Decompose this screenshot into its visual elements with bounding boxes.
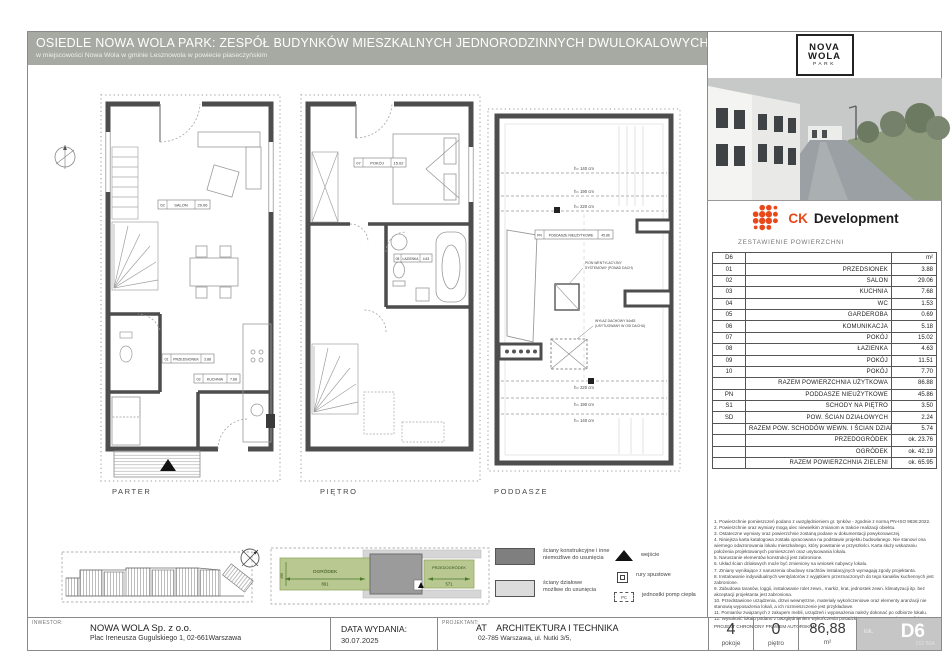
- area-stat: 86,88 m²: [798, 618, 856, 650]
- svg-text:PRZEDSIONEK: PRZEDSIONEK: [173, 357, 199, 361]
- unit-number: D6: [901, 621, 925, 643]
- svg-text:WYŁAZ DACHOWY 54x83: WYŁAZ DACHOWY 54x83: [595, 319, 636, 323]
- legend-pipes: rury spustowe: [617, 572, 671, 583]
- developer-logo-area: NOVA WOLA PARK: [708, 32, 941, 79]
- legend-entrance: wejście: [615, 550, 659, 561]
- legend-heatpump-label: jednostki pomp ciepła: [642, 592, 696, 599]
- entrance-triangle-icon: [615, 550, 633, 561]
- area-table-row: PRZEDOGRÓDEKok. 23.76: [713, 435, 937, 446]
- svg-text:SALON: SALON: [174, 202, 188, 207]
- svg-text:SYSTEMOWY (PONAD DACH): SYSTEMOWY (PONAD DACH): [585, 266, 633, 270]
- floor-plan-parter: 02 SALON 29.06: [98, 92, 283, 484]
- room-label-kuchnia: 03 KUCHNIA 7.68: [194, 374, 240, 383]
- north-arrow-icon: [52, 144, 78, 170]
- svg-text:03: 03: [197, 377, 201, 381]
- note-line: 7. Zmiany wynikające z naruszenia obudow…: [714, 568, 935, 574]
- legend-entrance-label: wejście: [641, 552, 659, 559]
- svg-text:OGRÓDEK: OGRÓDEK: [313, 568, 338, 575]
- issue-date-cell: DATA WYDANIA: 30.07.2025: [330, 618, 437, 650]
- investor-name: NOWA WOLA Sp. z o.o.: [90, 623, 241, 634]
- note-line: 9. Zabudowa tarasów, loggii, instalowani…: [714, 586, 935, 598]
- structural-wall-swatch: [495, 548, 535, 565]
- wall-stub-right-1: [637, 220, 671, 232]
- unit-code: Z02 B8A: [916, 641, 935, 647]
- disclaimer-notes: 1. Powierzchnie pomieszczeń podano z uwz…: [714, 519, 935, 630]
- investor-address: Plac Ireneusza Gugulskiego 1, 02-661Wars…: [90, 635, 241, 642]
- development-text: Development: [814, 211, 899, 226]
- svg-text:h= 190 cm: h= 190 cm: [574, 402, 594, 407]
- svg-text:PRZEDOGRÓDEK: PRZEDOGRÓDEK: [432, 565, 466, 570]
- svg-text:3.88: 3.88: [204, 357, 211, 361]
- outer-walls: [308, 104, 471, 449]
- area-value: 86,88: [809, 622, 845, 637]
- area-table-row: OGRÓDEKok. 42.19: [713, 446, 937, 457]
- legend-structural-line2: niemożliwe do usunięcia: [543, 555, 604, 561]
- legend-partition-line1: ściany działowe: [543, 580, 582, 586]
- area-table-row: S1SCHODY NA PIĘTRO3.50: [713, 401, 937, 412]
- svg-text:ŁAZIENKA: ŁAZIENKA: [403, 257, 420, 261]
- drainpipe-icon: [617, 572, 628, 583]
- estate-photo: [708, 78, 942, 201]
- investor-label: INWESTOR:: [32, 620, 63, 626]
- svg-text:861: 861: [322, 582, 330, 587]
- rooms-value: 4: [727, 622, 736, 638]
- plan-label-poddasze: PODDASZE: [494, 487, 548, 496]
- terrace: [114, 451, 200, 477]
- svg-text:571: 571: [446, 582, 454, 587]
- svg-text:45.86: 45.86: [601, 233, 610, 237]
- area-table-row: 06KOMUNIKACJA5.18: [713, 321, 937, 332]
- designer-address: 02-785 Warszawa, ul. Nutki 3/5,: [478, 635, 571, 642]
- unit-id-box: lok. D6 Z02 B8A: [856, 618, 941, 650]
- area-table-row: 09POKÓJ11.51: [713, 355, 937, 366]
- svg-text:h= 140 cm: h= 140 cm: [574, 418, 594, 423]
- area-table-row: 03KUCHNIA7.68: [713, 287, 937, 298]
- svg-text:29.06: 29.06: [197, 202, 208, 207]
- nova-wola-park-logo: NOVA WOLA PARK: [796, 34, 854, 76]
- investor-cell: INWESTOR: NOWA WOLA Sp. z o.o. Plac Iren…: [28, 618, 330, 650]
- room-label-pokoj: 07 POKÓJ 15.02: [354, 158, 406, 167]
- rooms-stat: 4 pokoje: [708, 618, 753, 650]
- svg-text:4.63: 4.63: [423, 257, 430, 261]
- svg-text:02: 02: [160, 202, 165, 207]
- compass-icon: [238, 546, 262, 570]
- area-table-row: RAZEM POW. SCHODÓW WEWN. I ŚCIAN DZIAŁ.5…: [713, 423, 937, 434]
- svg-text:07: 07: [356, 160, 361, 165]
- partition-wall-swatch: [495, 580, 535, 597]
- legend-structural: ściany konstrukcyjne i inne niemożliwe d…: [495, 548, 610, 565]
- area-table-row: 05GARDEROBA0.69: [713, 309, 937, 320]
- svg-text:08: 08: [396, 257, 400, 261]
- sidebar: NOVA WOLA PARK: [707, 32, 941, 617]
- plan-label-pietro: PIĘTRO: [320, 487, 358, 496]
- plan-label-parter: PARTER: [112, 487, 151, 496]
- svg-text:PN: PN: [537, 233, 542, 237]
- svg-text:01: 01: [165, 357, 169, 361]
- legend-structural-line1: ściany konstrukcyjne i inne: [543, 548, 610, 554]
- area-table: D6 m² 01PRZEDSIONEK3.8802SALON29.0603KUC…: [712, 252, 937, 469]
- area-table-row: 08ŁAZIENKA4.63: [713, 344, 937, 355]
- svg-text:h= 220 cm: h= 220 cm: [574, 204, 594, 209]
- title-bar: OSIEDLE NOWA WOLA PARK: ZESPÓŁ BUDYNKÓW …: [28, 32, 707, 65]
- area-table-row: 04WC1.53: [713, 298, 937, 309]
- area-table-row: 07POKÓJ15.02: [713, 332, 937, 343]
- area-table-row: 02SALON29.06: [713, 275, 937, 286]
- title-block-footer: INWESTOR: NOWA WOLA Sp. z o.o. Plac Iren…: [28, 617, 941, 650]
- wall-stub-right-2: [625, 291, 671, 306]
- door-marker: [266, 414, 275, 428]
- issue-date-label: DATA WYDANIA:: [341, 624, 407, 634]
- svg-text:PODDASZE NIEUŻYTKOWE: PODDASZE NIEUŻYTKOWE: [549, 232, 594, 237]
- designer-cell: PROJEKTANT: AT ARCHITEKTURA I TECHNIKA 0…: [437, 618, 708, 650]
- area-table-title: ZESTAWIENIE POWIERZCHNI: [738, 239, 844, 246]
- area-unit-label: m²: [824, 639, 831, 646]
- legend-pipes-label: rury spustowe: [636, 572, 671, 579]
- catalog-sheet: OSIEDLE NOWA WOLA PARK: ZESPÓŁ BUDYNKÓW …: [0, 0, 950, 671]
- note-line: 10. Przedstawione urządzenia, drzwi wewn…: [714, 598, 935, 610]
- legend-partition: ściany działowe możliwe do usunięcia: [495, 580, 596, 597]
- svg-text:KUCHNIA: KUCHNIA: [207, 377, 224, 381]
- svg-text:h= 140 cm: h= 140 cm: [574, 166, 594, 171]
- note-line: 4. Niniejsza karta katalogowa została op…: [714, 537, 935, 555]
- unit-prefix: lok.: [864, 629, 873, 635]
- room-label-pn: PN PODDASZE NIEUŻYTKOWE 45.86: [535, 230, 613, 239]
- designer-label: PROJEKTANT:: [442, 620, 479, 626]
- legend-heatpump: PC jednostki pomp ciepła: [614, 592, 696, 602]
- heat-pump-icon: PC: [614, 592, 634, 602]
- legend-partition-line2: możliwe do usunięcia: [543, 587, 596, 593]
- svg-text:POKÓJ: POKÓJ: [370, 160, 384, 165]
- floor-plan-poddasze: h= 140 cm h= 190 cm h= 220 cm h= 220 cm …: [485, 106, 683, 474]
- room-label-lazienka: 08 ŁAZIENKA 4.63: [394, 254, 432, 262]
- svg-text:h= 190 cm: h= 190 cm: [574, 189, 594, 194]
- area-table-row: RAZEM POWIERZCHNIA UŻYTKOWA86.88: [713, 378, 937, 389]
- floor-stat: 0 piętro: [753, 618, 798, 650]
- svg-text:15.02: 15.02: [393, 160, 404, 165]
- area-table-row: SDPOW. ŚCIAN DZIAŁOWYCH2.24: [713, 412, 937, 423]
- designer-name: AT ARCHITEKTURA I TECHNIKA: [476, 623, 619, 633]
- floor-label: piętro: [768, 640, 784, 647]
- note-line: 8. Instalowanie indywidualnych wentylato…: [714, 574, 935, 586]
- svg-text:h= 220 cm: h= 220 cm: [574, 385, 594, 390]
- ck-development-logo: CK Development: [708, 200, 941, 236]
- floor-plan-pietro: 07 POKÓJ 15.02: [298, 92, 483, 484]
- svg-text:490: 490: [280, 573, 284, 579]
- area-table-header-row: D6 m²: [713, 253, 937, 264]
- windows: [469, 147, 473, 202]
- issue-date-value: 30.07.2025: [341, 636, 379, 645]
- area-table-row: 01PRZEDSIONEK3.88: [713, 264, 937, 275]
- rooms-label: pokoje: [722, 640, 741, 647]
- area-table-row: PNPODDASZE NIEUŻYTKOWE45.86: [713, 389, 937, 400]
- ck-dots-icon: [750, 202, 782, 234]
- svg-text:7.68: 7.68: [230, 377, 237, 381]
- area-table-row: RAZEM POWIERZCHNIA ZIELENIok. 65.95: [713, 458, 937, 469]
- room-label-salon: 02 SALON 29.06: [158, 200, 210, 209]
- area-table-row: 10POKÓJ7.70: [713, 366, 937, 377]
- building-elevation: [58, 544, 258, 610]
- site-plan: OGRÓDEK 861 490 PRZEDOGRÓDEK 571: [268, 542, 493, 612]
- svg-text:(USYTUOWANY W OSI DACHU): (USYTUOWANY W OSI DACHU): [595, 324, 645, 328]
- page-subtitle: w miejscowości Nowa Wola w gminie Leszno…: [36, 52, 699, 59]
- page-title: OSIEDLE NOWA WOLA PARK: ZESPÓŁ BUDYNKÓW …: [36, 36, 699, 50]
- ck-text: CK: [788, 211, 808, 226]
- legend: ściany konstrukcyjne i inne niemożliwe d…: [495, 546, 713, 612]
- wall-stub-left: [499, 344, 541, 359]
- sheet-frame: OSIEDLE NOWA WOLA PARK: ZESPÓŁ BUDYNKÓW …: [27, 31, 942, 651]
- svg-text:PION WENTYLACYJNY: PION WENTYLACYJNY: [585, 261, 622, 265]
- room-label-przedsionek: 01 PRZEDSIONEK 3.88: [162, 354, 214, 363]
- floor-value: 0: [772, 622, 781, 638]
